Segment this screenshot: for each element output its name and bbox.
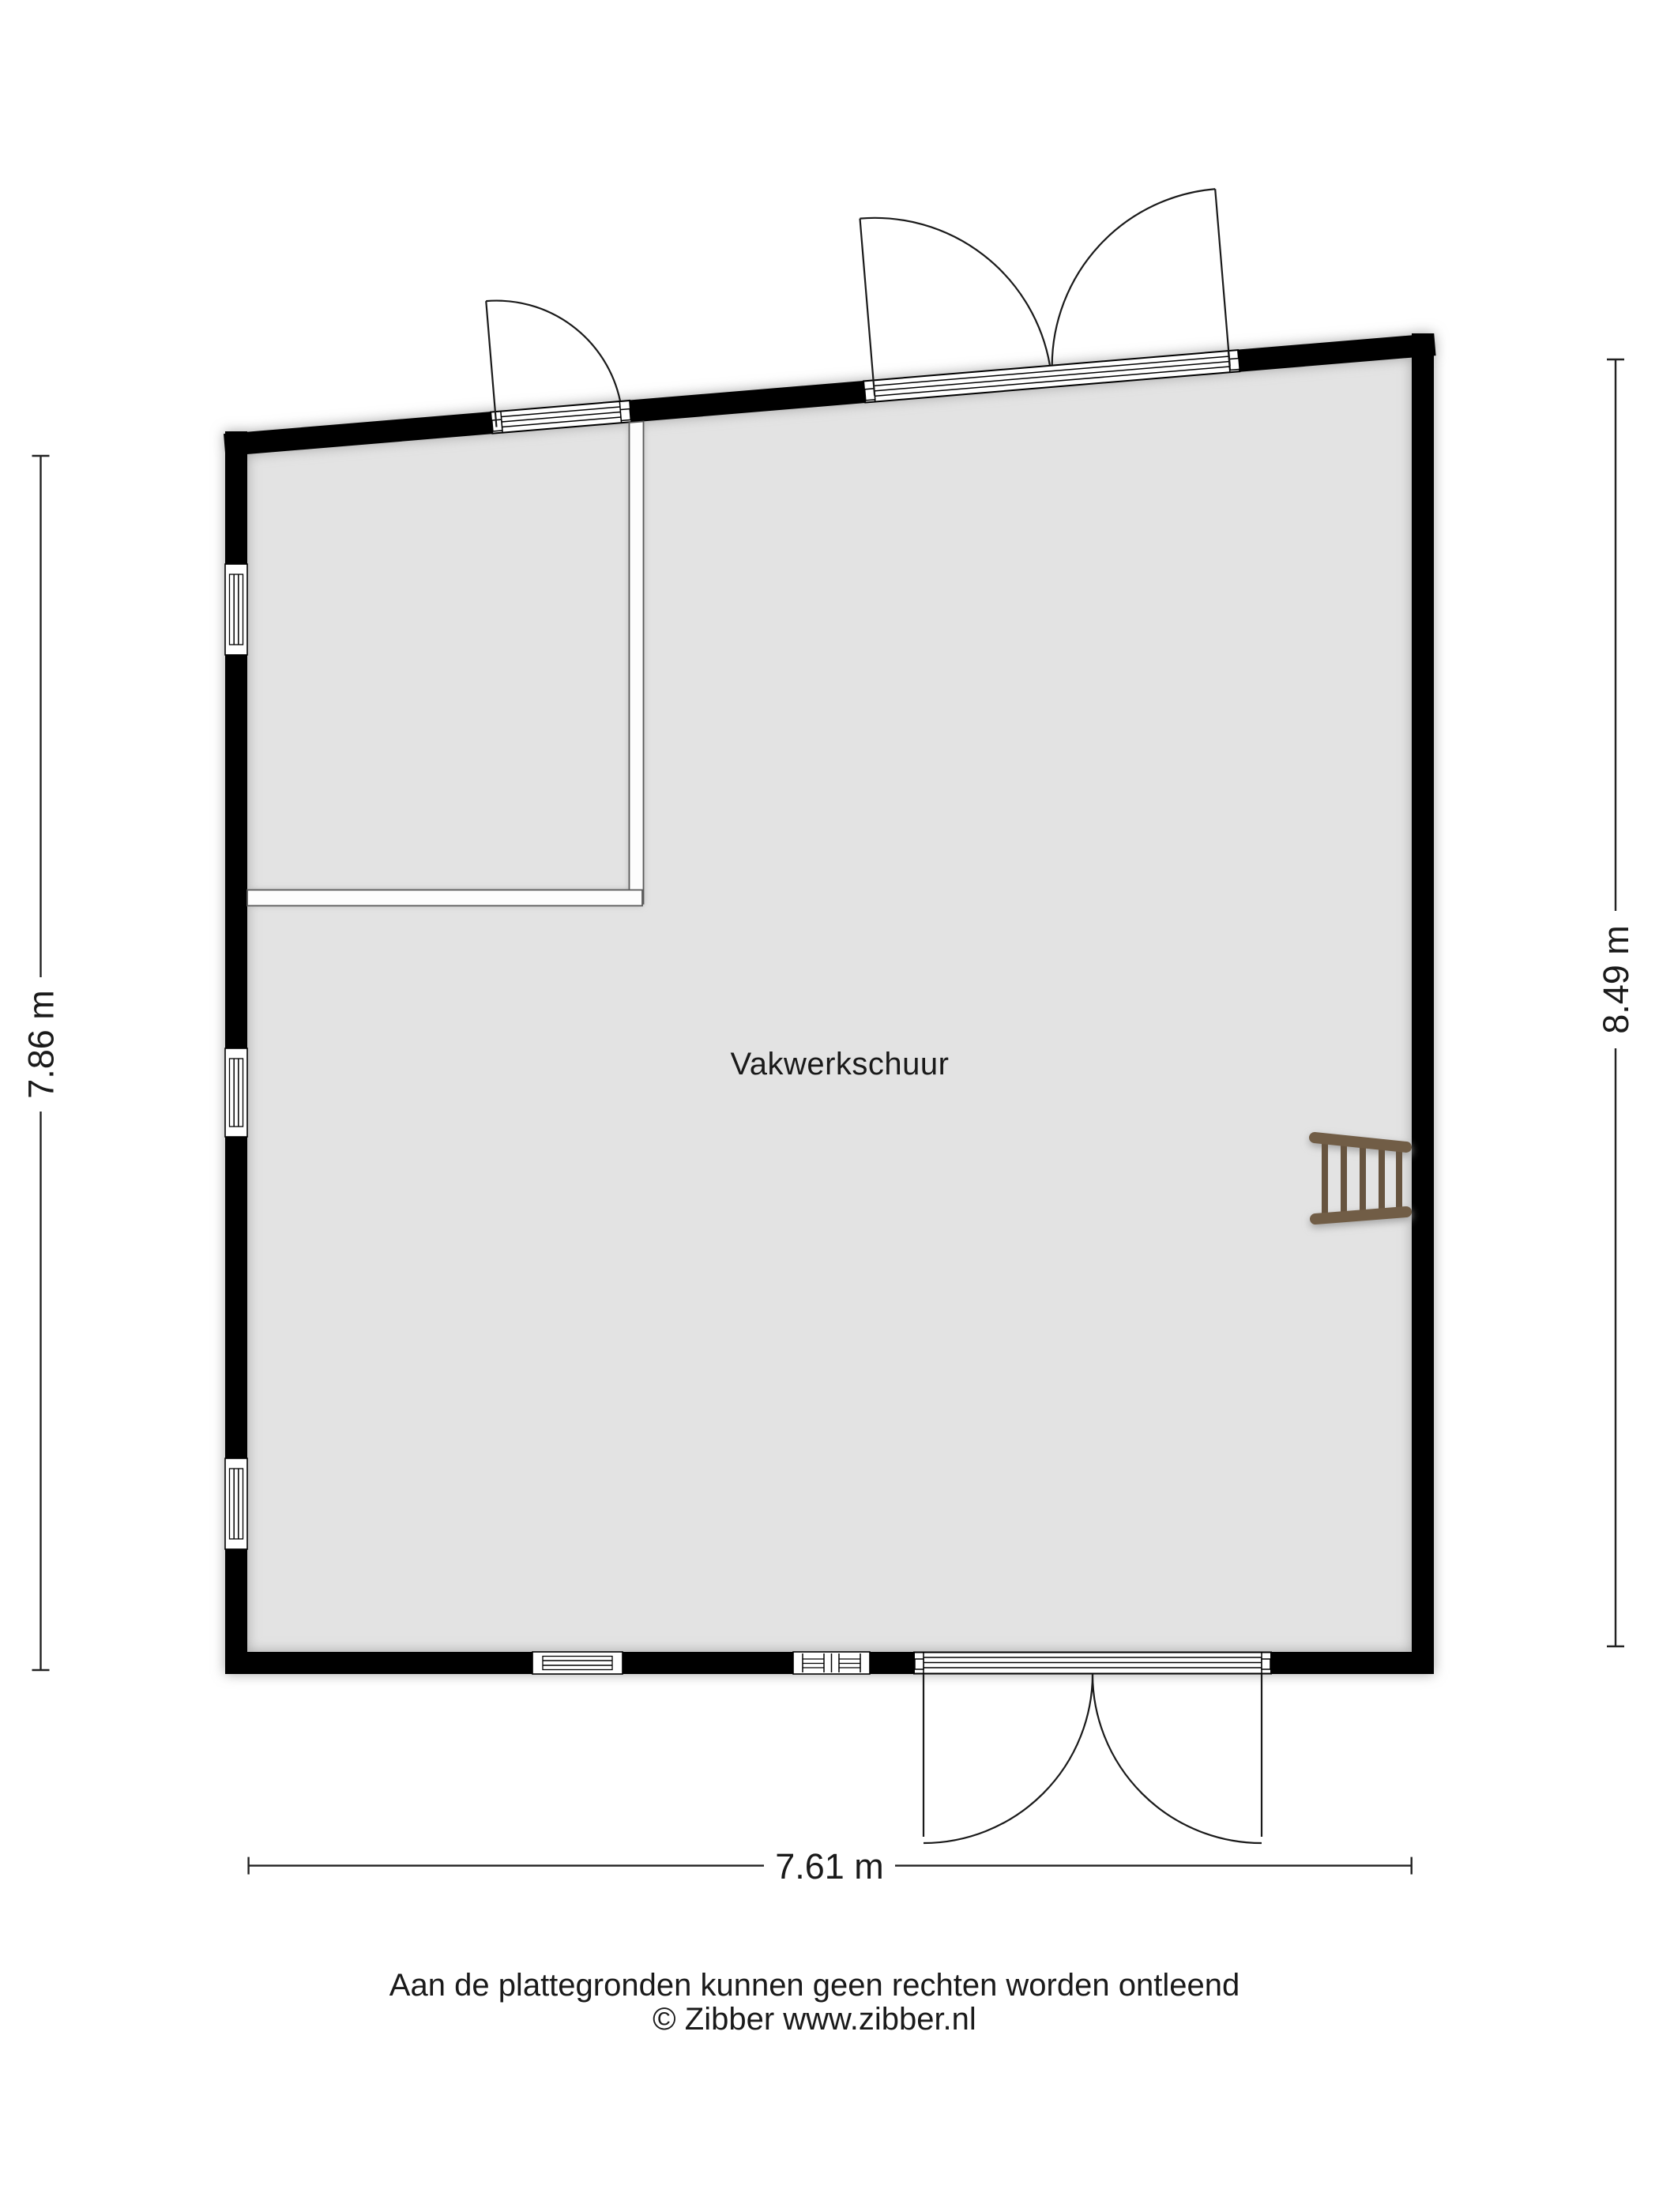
svg-text:7.61 m: 7.61 m xyxy=(775,1846,884,1887)
svg-text:Aan de plattegronden kunnen ge: Aan de plattegronden kunnen geen rechten… xyxy=(389,1968,1240,2003)
svg-text:8.49 m: 8.49 m xyxy=(1596,925,1636,1034)
svg-text:7.86 m: 7.86 m xyxy=(21,990,62,1099)
svg-text:© Zibber www.zibber.nl: © Zibber www.zibber.nl xyxy=(653,2002,976,2037)
svg-text:Vakwerkschuur: Vakwerkschuur xyxy=(731,1047,950,1082)
